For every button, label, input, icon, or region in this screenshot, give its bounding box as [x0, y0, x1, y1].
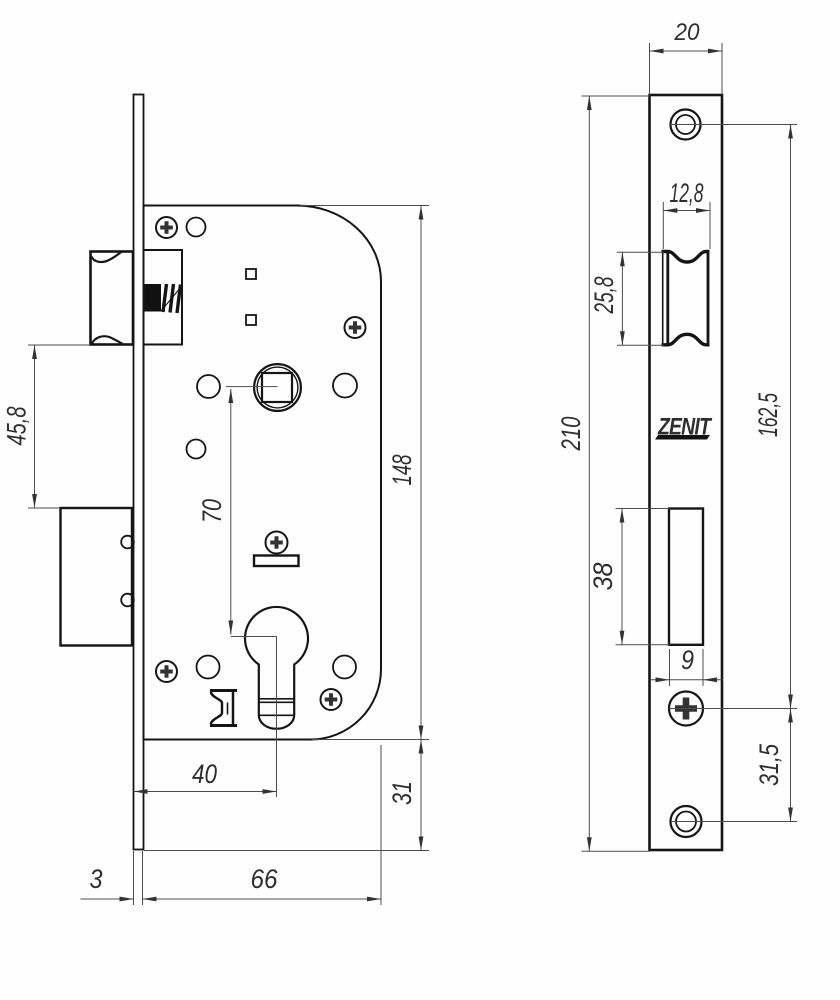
svg-text:31: 31	[387, 781, 417, 805]
svg-text:70: 70	[197, 499, 227, 523]
svg-text:162,5: 162,5	[753, 392, 783, 437]
svg-text:31,5: 31,5	[754, 743, 784, 786]
svg-text:66: 66	[251, 864, 279, 894]
svg-text:3: 3	[90, 864, 103, 894]
svg-text:9: 9	[681, 645, 694, 675]
svg-text:20: 20	[674, 19, 701, 46]
svg-text:210: 210	[556, 417, 586, 452]
svg-text:38: 38	[588, 563, 618, 591]
svg-text:45,8: 45,8	[2, 407, 32, 446]
svg-text:25,8: 25,8	[589, 277, 619, 315]
svg-text:40: 40	[192, 759, 217, 789]
svg-text:12,8: 12,8	[670, 178, 704, 208]
svg-text:148: 148	[387, 455, 417, 486]
